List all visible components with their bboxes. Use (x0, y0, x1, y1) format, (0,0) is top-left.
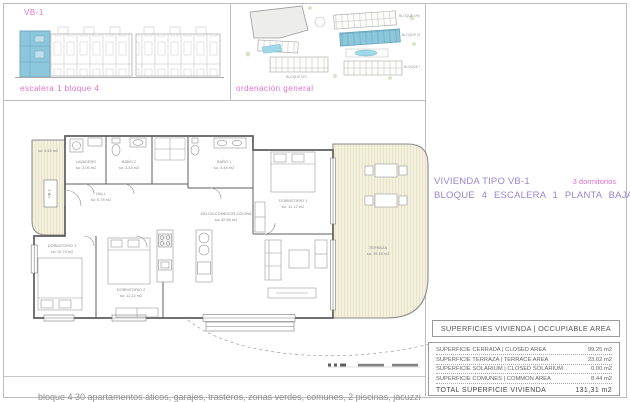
bedroom2-area: su: 11.12 m2 (120, 293, 142, 298)
living-room-area: su: 32.86 m2 (215, 217, 238, 222)
table-row: SUPERFICIE TERRAZA | TERRACE AREA 23.62 … (436, 355, 612, 364)
site-plan-drawing: BLOQUE Nº5 BLOQUE Nº4 BLOQUE Nº3 BLOQUE … (240, 4, 420, 82)
bath2-name: BAÑO 2 (122, 159, 136, 164)
elevation-caption: escalera 1 bloque 4 (20, 84, 99, 93)
bath2-area: su: 3.83 m2 (119, 165, 139, 170)
floor-plan: VB-1 (28, 122, 432, 374)
porch-area-label: su: 4.44 m2 (38, 148, 58, 153)
bedroom3-area: su: 10.79 m2 (51, 249, 74, 254)
dwelling-location: BLOQUE 4 ESCALERA 1 PLANTA BAJA (434, 190, 616, 201)
plan-footer-divider (4, 376, 425, 377)
title-block: VIVIENDA TIPO VB-1 3 dormitorios BLOQUE … (434, 176, 616, 201)
site-block-3 (344, 61, 402, 75)
areas-table: SUPERFICIE CERRADA | CLOSED AREA 99.25 m… (428, 342, 620, 396)
hall-name: HALL (96, 191, 107, 196)
site-block-5 (334, 11, 397, 29)
laundry-name: LAVADERO (76, 159, 97, 164)
bath1-area: su: 4.48 m2 (214, 165, 234, 170)
site-block4-label: BLOQUE Nº4 (402, 33, 420, 37)
unit-tag-box: VB-1 (44, 180, 57, 207)
site-block3-label: BLOQUE Nº3 (404, 65, 420, 69)
plan-sheet-page: { "header": { "unit_code": "VB-1", "elev… (0, 0, 630, 401)
site-pool-area (346, 49, 388, 57)
elevation-strip-left (50, 34, 132, 76)
bedrooms-count: 3 dormitorios (573, 177, 616, 186)
area-row-label: SUPERFICIE TERRAZA | TERRACE AREA (436, 357, 548, 363)
hall-area: su: 5.78 m2 (91, 197, 111, 202)
living-room-name: SALON-COMEDOR-COCINA (200, 211, 252, 216)
site-block-4-highlighted (340, 29, 401, 46)
bedroom3-name: DORMITORIO 3 (48, 243, 76, 248)
site-block5-label: BLOQUE Nº5 (399, 14, 420, 18)
laundry-area: su: 3.05 m2 (76, 165, 96, 170)
bedroom2-name: DORMITORIO 2 (117, 287, 145, 292)
highlighted-unit-elevation (20, 31, 50, 77)
table-total-row: TOTAL SUPERFICIE VIVIENDA 131,31 m2 (436, 387, 612, 394)
terrace-area: su: 19.18 m2 (367, 251, 390, 256)
building-elevation-drawing (12, 22, 227, 82)
table-row: SUPERFICIE COMUNES | COMMON AREA 8.44 m2 (436, 374, 612, 383)
unit-tag-text: VB-1 (47, 188, 52, 198)
elevation-roof-boxes (58, 27, 206, 34)
site-existing-building (250, 6, 308, 38)
area-row-label: SUPERFICIE SOLARIUM | CLOSED SOLARIUM (436, 366, 563, 372)
table-row: SUPERFICIE SOLARIUM | CLOSED SOLARIUM 0.… (436, 365, 612, 374)
area-row-value: 23.62 m2 (588, 357, 612, 363)
area-row-label: SUPERFICIE COMUNES | COMMON AREA (436, 376, 551, 382)
scale-bar (328, 360, 424, 370)
bedroom1-area: su: 12.12 m2 (282, 204, 305, 209)
siteplan-caption: ordenación general (236, 84, 314, 93)
header-divider-horizontal (4, 100, 425, 101)
unit-code-label: VB-1 (24, 8, 44, 17)
dwelling-type-title: VIVIENDA TIPO VB-1 (434, 176, 530, 187)
area-row-value: 99.25 m2 (588, 347, 612, 353)
total-label: TOTAL SUPERFICIE VIVIENDA (436, 387, 546, 394)
area-row-value: 8.44 m2 (591, 376, 612, 382)
area-row-label: SUPERFICIE CERRADA | CLOSED AREA (436, 347, 546, 353)
site-block2-label: BLOQUE Nº2 (286, 75, 307, 79)
bedroom1-name: DORMITORIO 1 (279, 198, 307, 203)
total-value: 131,31 m2 (575, 387, 612, 394)
table-row: SUPERFICIE CERRADA | CLOSED AREA 99.25 m… (436, 346, 612, 355)
site-roundabout (315, 17, 325, 27)
bath1-name: BAÑO 1 (217, 159, 231, 164)
areas-table-header: SUPERFICIES VIVIENDA | OCCUPIABLE AREA (432, 320, 620, 337)
site-block-small (258, 40, 299, 55)
header-divider-vertical (230, 4, 231, 100)
elevation-strip-right (136, 34, 220, 76)
site-block-2 (270, 57, 328, 72)
area-row-value: 0.00 m2 (591, 366, 612, 372)
terrace-name: TERRAZA (369, 245, 388, 250)
